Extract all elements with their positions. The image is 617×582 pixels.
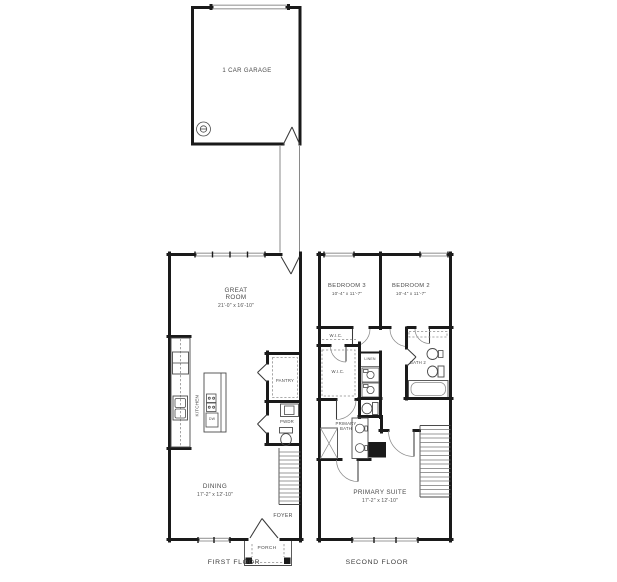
porch-label: PORCH — [251, 546, 283, 552]
powder-toilet-icon — [280, 428, 293, 446]
pantry-door — [258, 364, 268, 383]
porch-post — [284, 558, 291, 565]
powder-sink-icon — [281, 404, 299, 417]
primary-toilet-icon — [362, 403, 378, 415]
floorplan-linework — [0, 0, 617, 582]
second-floor-caption: SECOND FLOOR — [342, 559, 412, 567]
kitchen-label: KITCHEN — [194, 391, 199, 421]
linen-label: LINEN — [358, 357, 382, 361]
water-heater-icon — [197, 122, 211, 136]
dining-label: DINING — [185, 483, 245, 490]
bedroom2-dims: 10'-4" x 11'-7" — [381, 291, 441, 296]
primary-suite-label: PRIMARY SUITE — [350, 489, 410, 496]
breezeway-lines — [280, 146, 300, 253]
pantry-powder-walls — [258, 352, 301, 446]
wic-small-label: W.I.C. — [322, 333, 350, 338]
primary-suite-window — [352, 537, 418, 543]
primary-bath-label: PRIMARY BATH — [333, 421, 359, 431]
stairs-second-floor — [420, 426, 451, 498]
floorplan-page: 1 CAR GARAGE GREAT ROOM 21'-0" x 16'-10"… — [0, 0, 617, 582]
wic-large-label: W.I.C. — [324, 369, 352, 374]
garage-label: 1 CAR GARAGE — [211, 68, 283, 75]
front-door — [250, 519, 278, 539]
closets-and-laundry — [318, 340, 381, 420]
great-room-dims: 21'-0" x 16'-10" — [206, 304, 266, 310]
stairs-first-floor — [279, 448, 301, 505]
bath2-sink-icon — [427, 349, 443, 360]
powder-door — [258, 415, 268, 435]
dining-dims: 17'-2" x 12'-10" — [185, 493, 245, 499]
garage-door — [212, 5, 287, 9]
bathtub-icon — [409, 381, 449, 398]
great-room-window — [195, 252, 265, 258]
kitchen-counter — [168, 337, 190, 449]
powder-label: PWDR — [273, 419, 301, 424]
bedroom3-window — [324, 252, 354, 258]
bath2-vanity — [409, 332, 447, 338]
foyer-label: FOYER — [267, 513, 299, 519]
breezeway-entry-door — [281, 257, 300, 275]
chase — [368, 442, 386, 458]
dishwasher-label: DW — [204, 417, 220, 421]
pantry-label: PANTRY — [271, 378, 299, 383]
bedroom3-label: BEDROOM 3 — [317, 283, 377, 290]
first-floor-caption: FIRST FLOOR — [199, 559, 269, 567]
kitchen-island — [204, 373, 226, 432]
dining-window — [198, 537, 230, 543]
shower-icon — [321, 428, 338, 459]
bedroom2-window — [420, 252, 448, 258]
washer-dryer-icon — [362, 368, 379, 397]
garage-entry-door — [283, 127, 300, 145]
primary-suite-dims: 17'-2" x 12'-10" — [350, 499, 410, 505]
bath2-toilet-icon — [428, 366, 445, 377]
bath2-label: BATH 2 — [404, 360, 432, 365]
great-room-label: GREAT ROOM — [219, 287, 253, 302]
bedroom3-dims: 10'-4" x 11'-7" — [317, 291, 377, 296]
bedroom2-label: BEDROOM 2 — [381, 283, 441, 290]
